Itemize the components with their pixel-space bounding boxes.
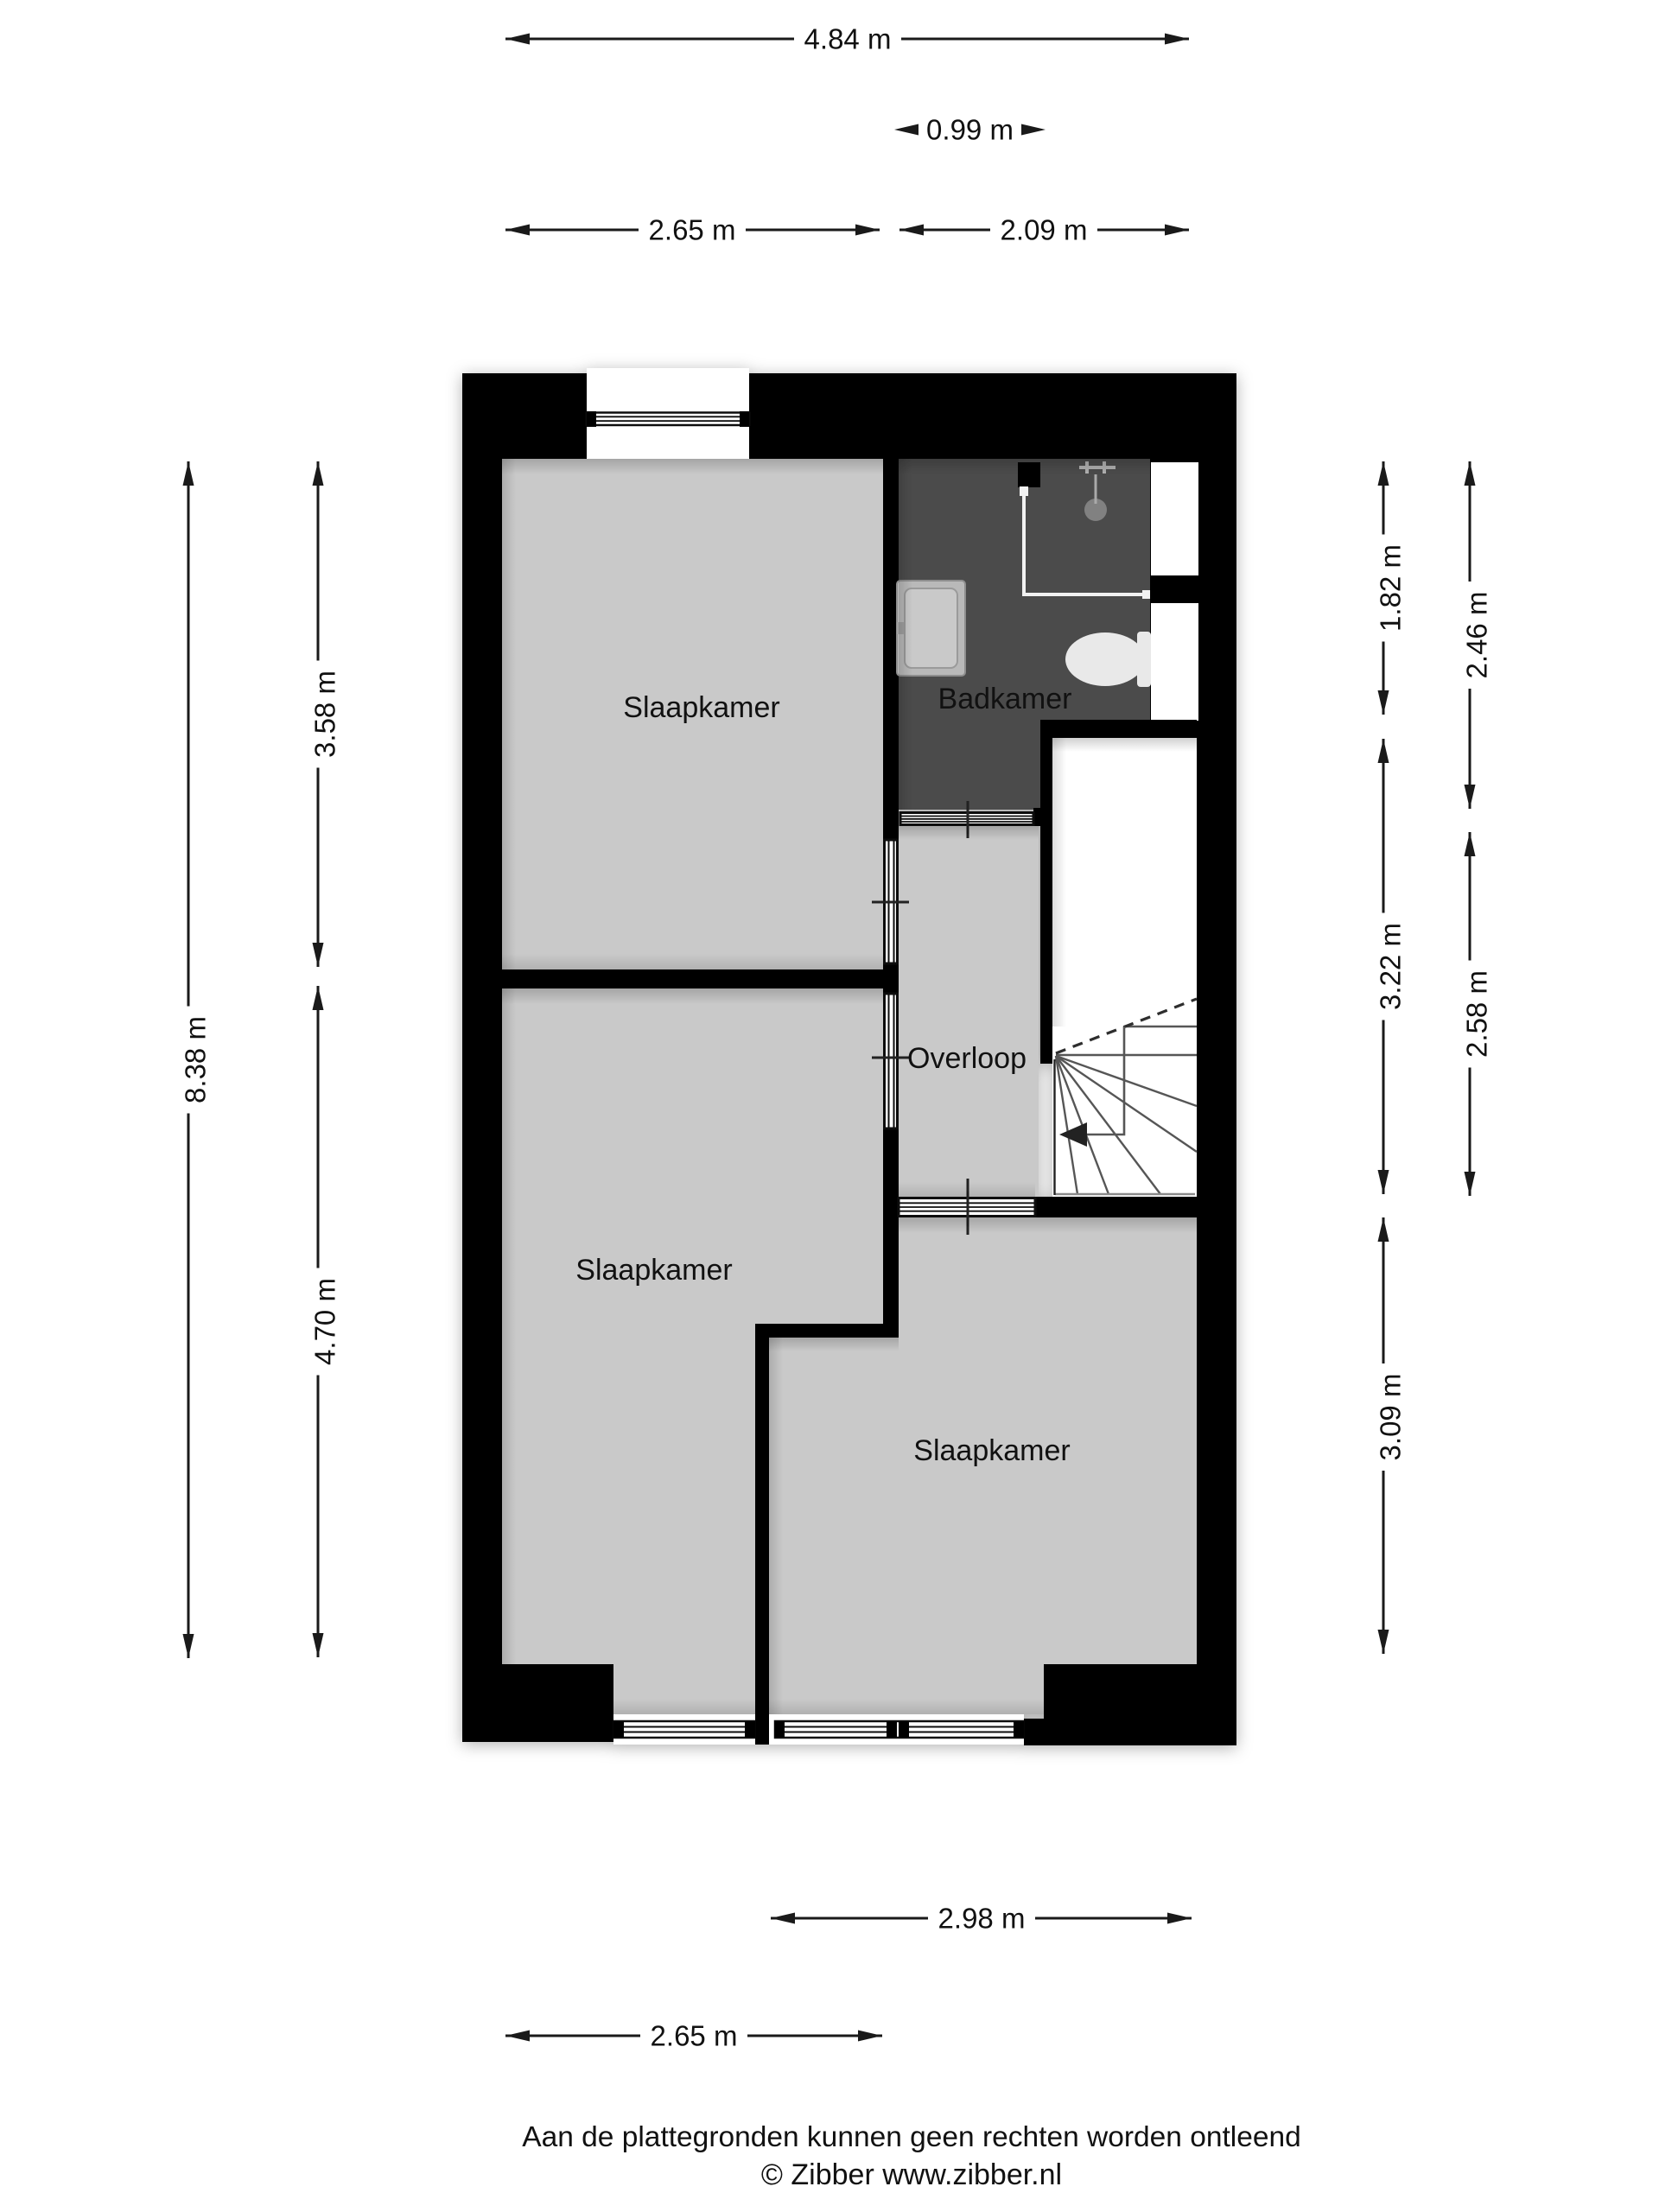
- svg-text:2.58 m: 2.58 m: [1461, 970, 1493, 1058]
- svg-text:2.46 m: 2.46 m: [1461, 592, 1493, 679]
- svg-text:Aan de plattegronden kunnen ge: Aan de plattegronden kunnen geen rechten…: [522, 2121, 1301, 2153]
- svg-text:3.22 m: 3.22 m: [1375, 923, 1407, 1010]
- svg-text:Slaapkamer: Slaapkamer: [575, 1254, 732, 1287]
- svg-text:2.09 m: 2.09 m: [1001, 214, 1088, 246]
- svg-text:© Zibber www.zibber.nl: © Zibber www.zibber.nl: [761, 2158, 1062, 2191]
- svg-text:8.38 m: 8.38 m: [180, 1016, 212, 1103]
- svg-text:3.58 m: 3.58 m: [309, 671, 341, 758]
- svg-text:2.65 m: 2.65 m: [651, 2020, 738, 2052]
- svg-text:Overloop: Overloop: [907, 1042, 1027, 1075]
- svg-text:3.09 m: 3.09 m: [1375, 1374, 1407, 1461]
- svg-text:2.98 m: 2.98 m: [938, 1903, 1026, 1935]
- svg-text:4.70 m: 4.70 m: [309, 1278, 341, 1365]
- svg-text:1.82 m: 1.82 m: [1375, 544, 1407, 632]
- svg-text:Slaapkamer: Slaapkamer: [913, 1434, 1070, 1467]
- svg-text:Slaapkamer: Slaapkamer: [623, 691, 779, 724]
- svg-text:Badkamer: Badkamer: [938, 683, 1072, 715]
- svg-text:0.99 m: 0.99 m: [926, 114, 1014, 146]
- svg-text:2.65 m: 2.65 m: [649, 214, 736, 246]
- svg-text:4.84 m: 4.84 m: [804, 23, 892, 55]
